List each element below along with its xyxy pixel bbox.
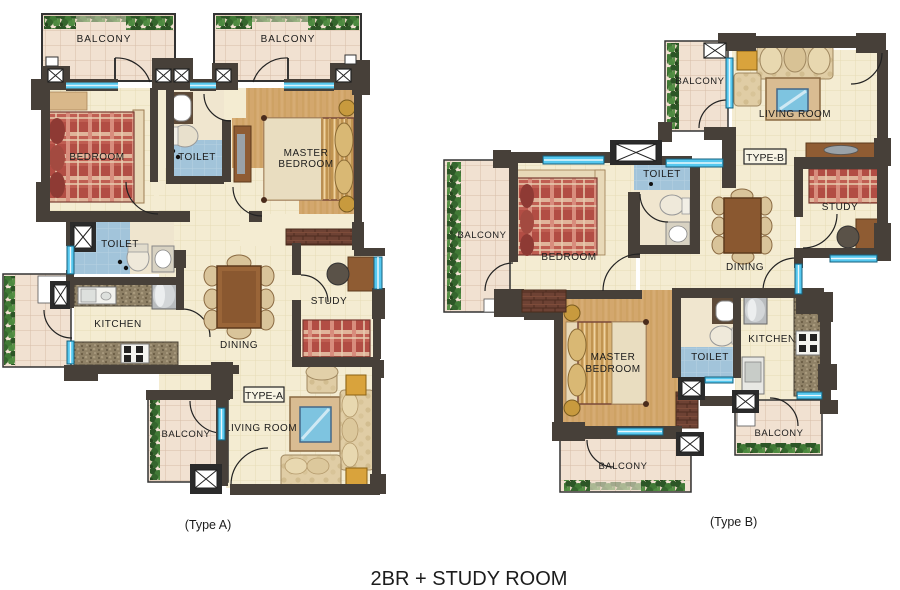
svg-text:LIVING ROOM: LIVING ROOM (759, 109, 831, 120)
svg-text:BALCONY: BALCONY (261, 34, 316, 45)
svg-text:BALCONY: BALCONY (676, 76, 725, 87)
svg-text:STUDY: STUDY (311, 296, 347, 307)
svg-text:TOILET: TOILET (178, 152, 216, 163)
svg-text:BEDROOM: BEDROOM (541, 252, 596, 263)
svg-text:KITCHEN: KITCHEN (748, 334, 795, 345)
svg-text:BALCONY: BALCONY (162, 429, 211, 440)
svg-text:2BR + STUDY ROOM: 2BR + STUDY ROOM (371, 568, 568, 590)
svg-text:TYPE-B: TYPE-B (746, 152, 784, 164)
svg-text:BALCONY: BALCONY (755, 428, 804, 439)
svg-text:(Type A): (Type A) (185, 518, 232, 532)
svg-text:STUDY: STUDY (822, 202, 858, 213)
svg-text:TYPE-A: TYPE-A (245, 390, 283, 402)
svg-text:DINING: DINING (220, 340, 258, 351)
svg-text:TOILET: TOILET (691, 352, 729, 363)
svg-text:(Type B): (Type B) (710, 515, 757, 529)
svg-text:TOILET: TOILET (101, 239, 139, 250)
svg-text:TOILET: TOILET (643, 169, 681, 180)
svg-text:BEDROOM: BEDROOM (278, 159, 333, 170)
svg-text:BALCONY: BALCONY (458, 230, 507, 241)
svg-text:BEDROOM: BEDROOM (69, 152, 124, 163)
svg-text:DINING: DINING (726, 262, 764, 273)
svg-text:BALCONY: BALCONY (77, 34, 132, 45)
svg-text:MASTER: MASTER (284, 148, 329, 159)
svg-text:LIVING ROOM: LIVING ROOM (225, 423, 297, 434)
svg-text:BALCONY: BALCONY (599, 461, 648, 472)
svg-text:MASTER: MASTER (591, 352, 636, 363)
svg-text:KITCHEN: KITCHEN (94, 319, 141, 330)
svg-text:BEDROOM: BEDROOM (585, 364, 640, 375)
